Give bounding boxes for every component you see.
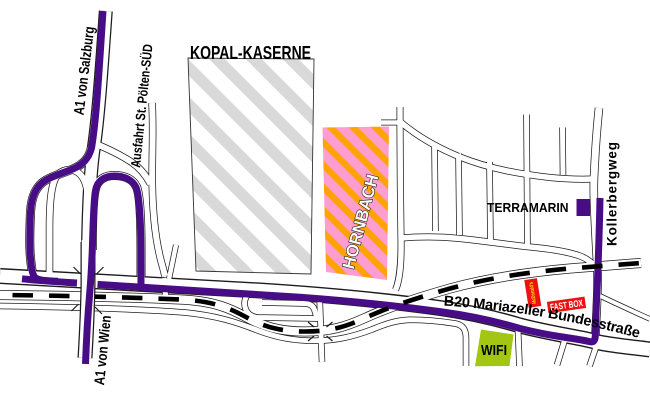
svg-text:WIFI: WIFI [481,342,507,359]
svg-text:Kollerbergweg: Kollerbergweg [605,142,620,246]
svg-text:KOPAL-KASERNE: KOPAL-KASERNE [190,43,311,63]
svg-text:TERRAMARIN: TERRAMARIN [487,201,569,215]
